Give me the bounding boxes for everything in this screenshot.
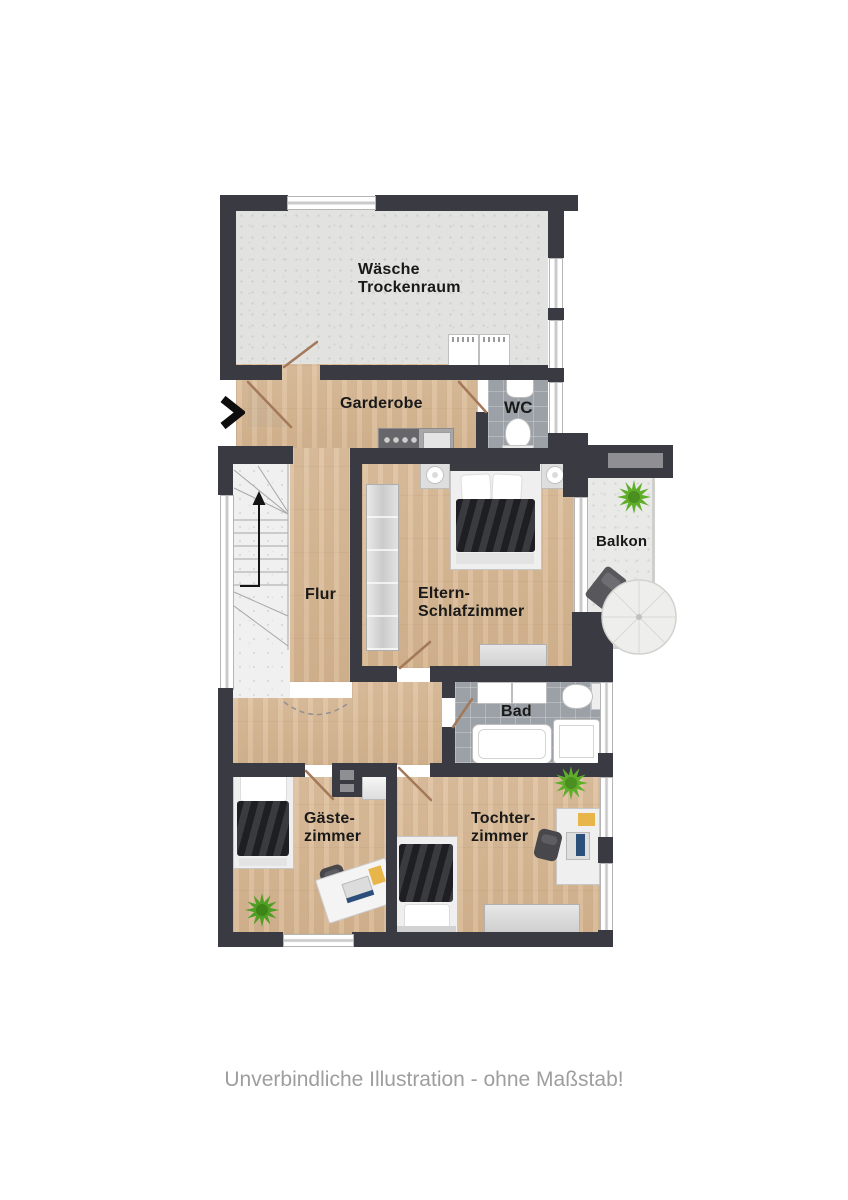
bathroom-toilet [562,684,593,709]
kitchenette-sink [423,432,451,449]
floor-plan-page: Wäsche Trockenraum Garderobe WC Flur Elt… [0,0,848,1200]
room-label-daughter-room: Tochter- zimmer [471,810,535,846]
wall [598,837,613,863]
double-bed-pillow-right [491,473,522,502]
window [600,863,613,932]
wall [548,368,564,382]
room-label-parents-line2: Schlafzimmer [418,603,524,621]
wall [228,763,305,777]
wall [548,195,564,258]
room-floor-hallway-lower-b [232,698,354,765]
wc-sink [506,377,534,398]
window [549,382,563,435]
room-label-flur: Flur [305,586,336,604]
room-label-guest-line1: Gäste- [304,810,361,828]
dryer [479,334,510,368]
daughter-sideboard [484,904,580,934]
wall [320,365,548,380]
room-label-parents-bedroom: Eltern- Schlafzimmer [418,585,524,621]
room-floor-hallway-lower-a [352,682,442,765]
bath-sink-right [512,682,547,704]
wall [442,727,455,763]
room-label-bathroom: Bad [501,703,532,721]
window [600,777,613,839]
wall [218,446,233,495]
wall [442,682,455,698]
wall [548,308,564,320]
chimney-flue [340,770,354,780]
room-label-bathroom-text: Bad [501,703,532,721]
wall [218,688,233,947]
wall [598,930,613,947]
chimney-flue [340,784,354,792]
bathtub-inner [478,729,546,759]
guest-bed-foot [239,858,287,866]
room-label-guest-room: Gäste- zimmer [304,810,361,846]
wall [350,448,564,464]
wall [350,464,362,668]
room-label-daughter-line1: Tochter- [471,810,535,828]
room-label-balcony: Balkon [596,533,647,551]
guest-bed-blanket [237,801,289,856]
room-floor-hallway [288,448,352,682]
room-label-parents-line1: Eltern- [418,585,524,603]
double-bed-blanket [456,499,535,552]
shower-inner [559,725,594,758]
balcony-wall [588,445,673,478]
bathtub [472,724,552,764]
room-label-garderobe-text: Garderobe [340,395,423,413]
room-label-laundry-line2: Trockenraum [358,279,461,297]
room-label-wc-text: WC [504,399,533,417]
wall [572,612,613,682]
chimney-shaft [332,763,362,797]
balcony-wall-opening [608,453,663,468]
window [287,196,376,210]
wall [220,195,236,380]
daughter-desk-pad [578,813,595,826]
room-label-wc: WC [504,399,533,417]
wall [236,365,282,380]
wall [386,777,397,933]
entrance-arrow-icon [219,395,245,436]
shower [553,719,600,764]
wardrobe-cabinet [366,484,399,651]
window [549,320,563,370]
bedside-lamp-right [546,466,564,484]
room-label-flur-text: Flur [305,586,336,604]
window [600,682,613,755]
wall [218,932,283,947]
disclaimer-caption: Unverbindliche Illustration - ohne Maßst… [0,1068,848,1092]
room-floor-stairwell [233,464,290,698]
wall [350,666,397,682]
room-label-daughter-line2: zimmer [471,828,535,846]
window [283,934,354,947]
daughter-bed-blanket [399,844,453,902]
room-label-guest-line2: zimmer [304,828,361,846]
bath-sink-left [477,682,512,704]
washing-machine [448,334,479,368]
bedside-lamp-left [426,466,444,484]
room-label-garderobe: Garderobe [340,395,423,413]
wall [430,763,613,777]
wall [352,932,613,947]
wc-toilet [505,418,531,448]
room-label-laundry: Wäsche Trockenraum [358,261,461,297]
balcony-door-window [574,497,588,614]
window [549,258,563,310]
double-bed-pillow-left [460,473,491,502]
double-bed-foot [456,553,534,564]
wall [598,753,613,777]
wall [563,433,588,497]
room-label-laundry-line1: Wäsche [358,261,461,279]
window [220,495,234,690]
room-label-balcony-text: Balkon [596,533,647,551]
daughter-laptop-screen [576,834,585,856]
wall [476,412,488,452]
